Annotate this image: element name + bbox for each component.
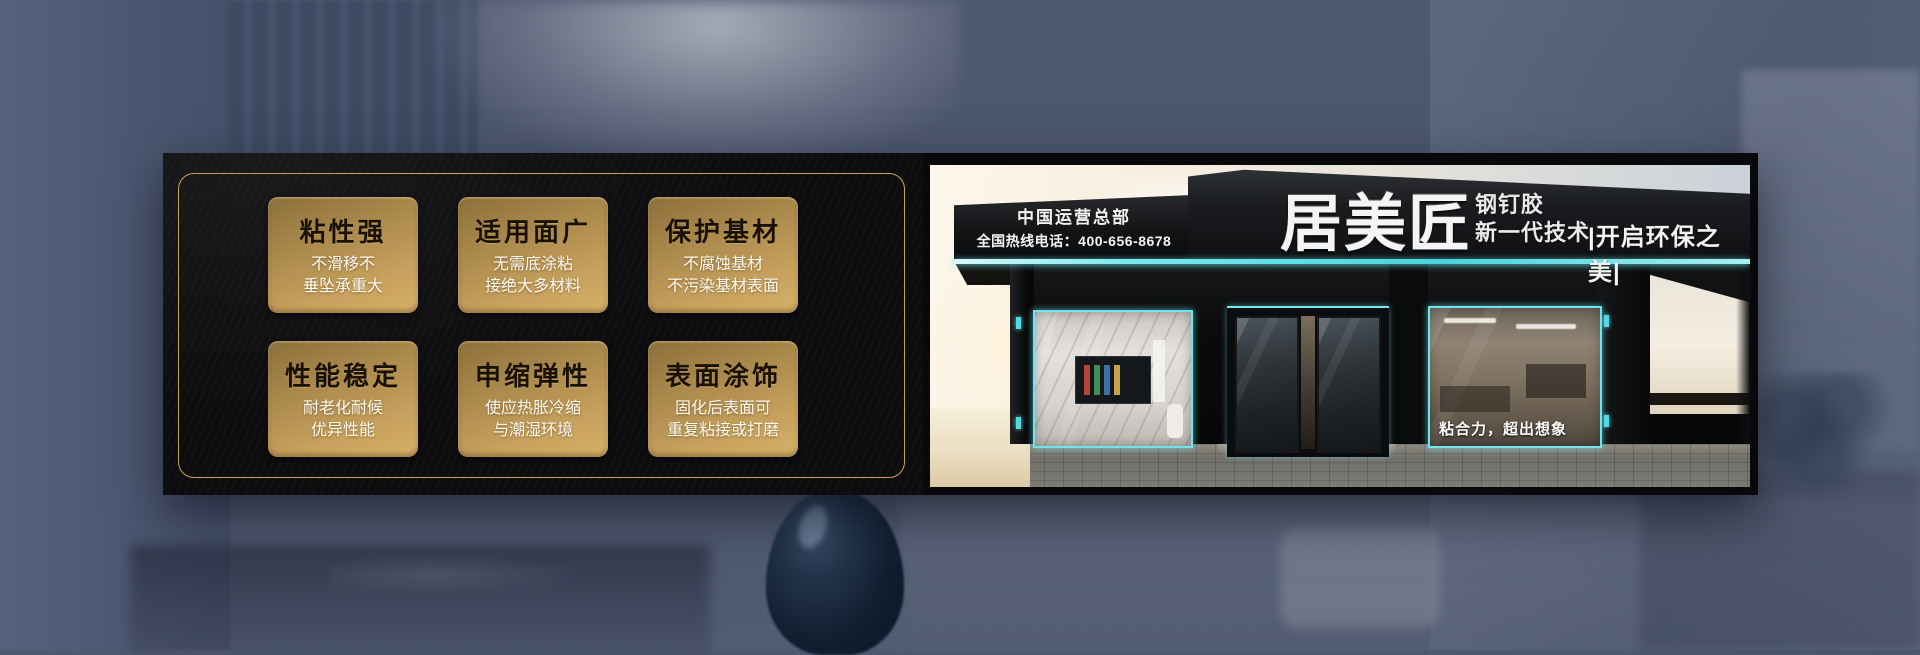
feature-description: 耐老化耐候 优异性能 [303,398,383,441]
edge-light [1604,415,1609,427]
hotline-label: 全国热线电话：400-656-8678 [956,231,1192,251]
photo-right-edge [1736,264,1750,455]
brand-subtitle: 钢钉胶 新一代技术 [1475,191,1590,247]
brand-name: 居美匠 [1280,173,1472,263]
edge-light [1604,315,1609,327]
feature-card-surface-finish: 表面涂饰 固化后表面可 重复粘接或打磨 [648,341,798,457]
ceiling-light [1516,324,1576,329]
ceiling-light [1444,318,1496,323]
feature-title: 申缩弹性 [475,356,591,393]
vertical-logo-strip [1153,340,1165,402]
feature-panel: 粘性强 不滑移不 垂坠承重大 适用面广 无需底涂粘 接绝大多材料 保护基材 不腐… [163,153,923,495]
feature-description: 无需底涂粘 接绝大多材料 [485,254,581,297]
door-pane-left [1235,316,1299,453]
edge-light [1016,417,1021,429]
feature-title: 表面涂饰 [665,356,781,393]
wall-screen [1075,356,1151,404]
feature-card-adhesion: 粘性强 不滑移不 垂坠承重大 [268,197,418,313]
storefront-photo: 中国运营总部 全国热线电话：400-656-8678 居美匠 钢钉胶 新一代技术… [930,165,1750,487]
feature-title: 适用面广 [475,212,591,249]
screen-content [1084,365,1142,395]
feature-card-protect-substrate: 保护基材 不腐蚀基材 不污染基材表面 [648,197,798,313]
display-window-left [1033,310,1193,448]
eco-slogan: |开启环保之美| [1588,217,1748,287]
feature-card-wide-use: 适用面广 无需底涂粘 接绝大多材料 [458,197,608,313]
background-chair-blur [1280,528,1440,628]
background-sill-blur [1640,470,1920,650]
edge-light [1016,317,1021,329]
hq-text-block: 中国运营总部 全国热线电话：400-656-8678 [956,203,1192,251]
feature-title: 性能稳定 [285,356,401,393]
facade-pillar-middle [1389,264,1428,455]
feature-description: 固化后表面可 重复粘接或打磨 [667,398,779,441]
display-window-right: 粘合力，超出想象 [1428,306,1602,448]
feature-title: 粘性强 [299,212,386,249]
window-slogan: 粘合力，超出想象 [1439,418,1567,439]
open-door-gap [1301,316,1315,449]
promo-banner[interactable]: 粘性强 不滑移不 垂坠承重大 适用面广 无需底涂粘 接绝大多材料 保护基材 不腐… [163,153,1758,495]
feature-description: 使应热胀冷缩 与潮湿环境 [485,398,581,441]
tech-tagline: 新一代技术 [1475,219,1590,247]
display-stand [1167,404,1183,438]
sand-ground [930,444,1030,487]
background-bright-blur [420,0,960,170]
feature-title: 保护基材 [665,212,781,249]
entrance-doors [1227,306,1389,457]
product-name: 钢钉胶 [1475,191,1590,219]
feature-card-elastic: 申缩弹性 使应热胀冷缩 与潮湿环境 [458,341,608,457]
feature-card-stable: 性能稳定 耐老化耐候 优异性能 [268,341,418,457]
feature-description: 不腐蚀基材 不污染基材表面 [667,254,779,297]
background-vase [766,490,904,655]
side-wall-bar [1650,393,1750,405]
door-pane-right [1317,316,1381,453]
interior-counter [1440,386,1510,412]
background-table-items [330,555,590,595]
hq-label: 中国运营总部 [956,203,1192,228]
feature-description: 不滑移不 垂坠承重大 [303,254,383,297]
facade-pillar-left [1010,264,1034,455]
interior-shelf [1526,364,1586,398]
